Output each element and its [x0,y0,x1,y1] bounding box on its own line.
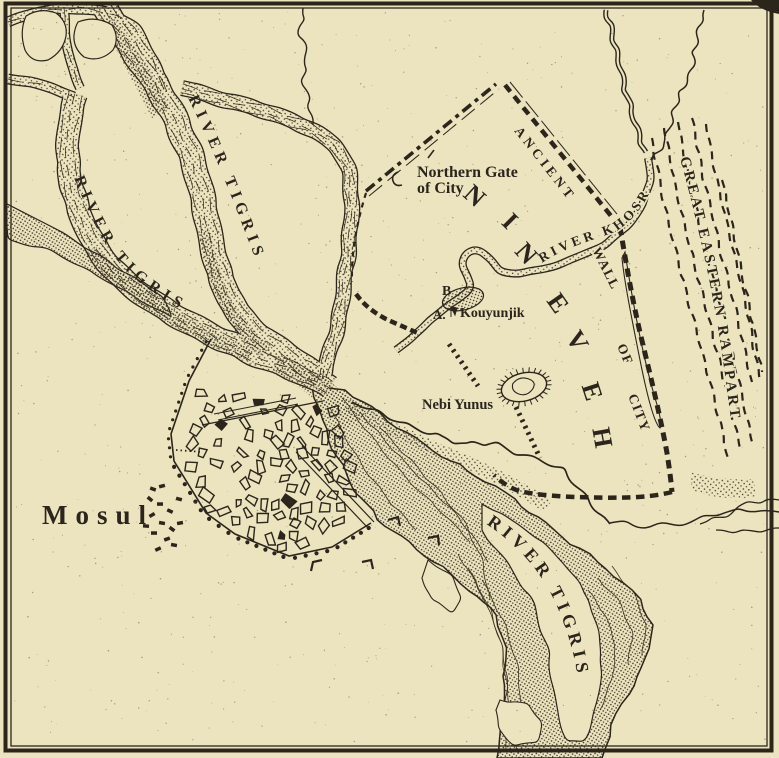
svg-text:Northern Gate: Northern Gate [417,164,518,181]
svg-text:Nebi Yunus: Nebi Yunus [422,397,493,413]
svg-text:Kouyunjik: Kouyunjik [460,306,525,321]
svg-text:B: B [442,284,451,299]
svg-text:of City: of City [417,180,464,197]
svg-text:Mosul: Mosul [42,500,154,530]
svg-text:A.: A. [433,307,446,322]
